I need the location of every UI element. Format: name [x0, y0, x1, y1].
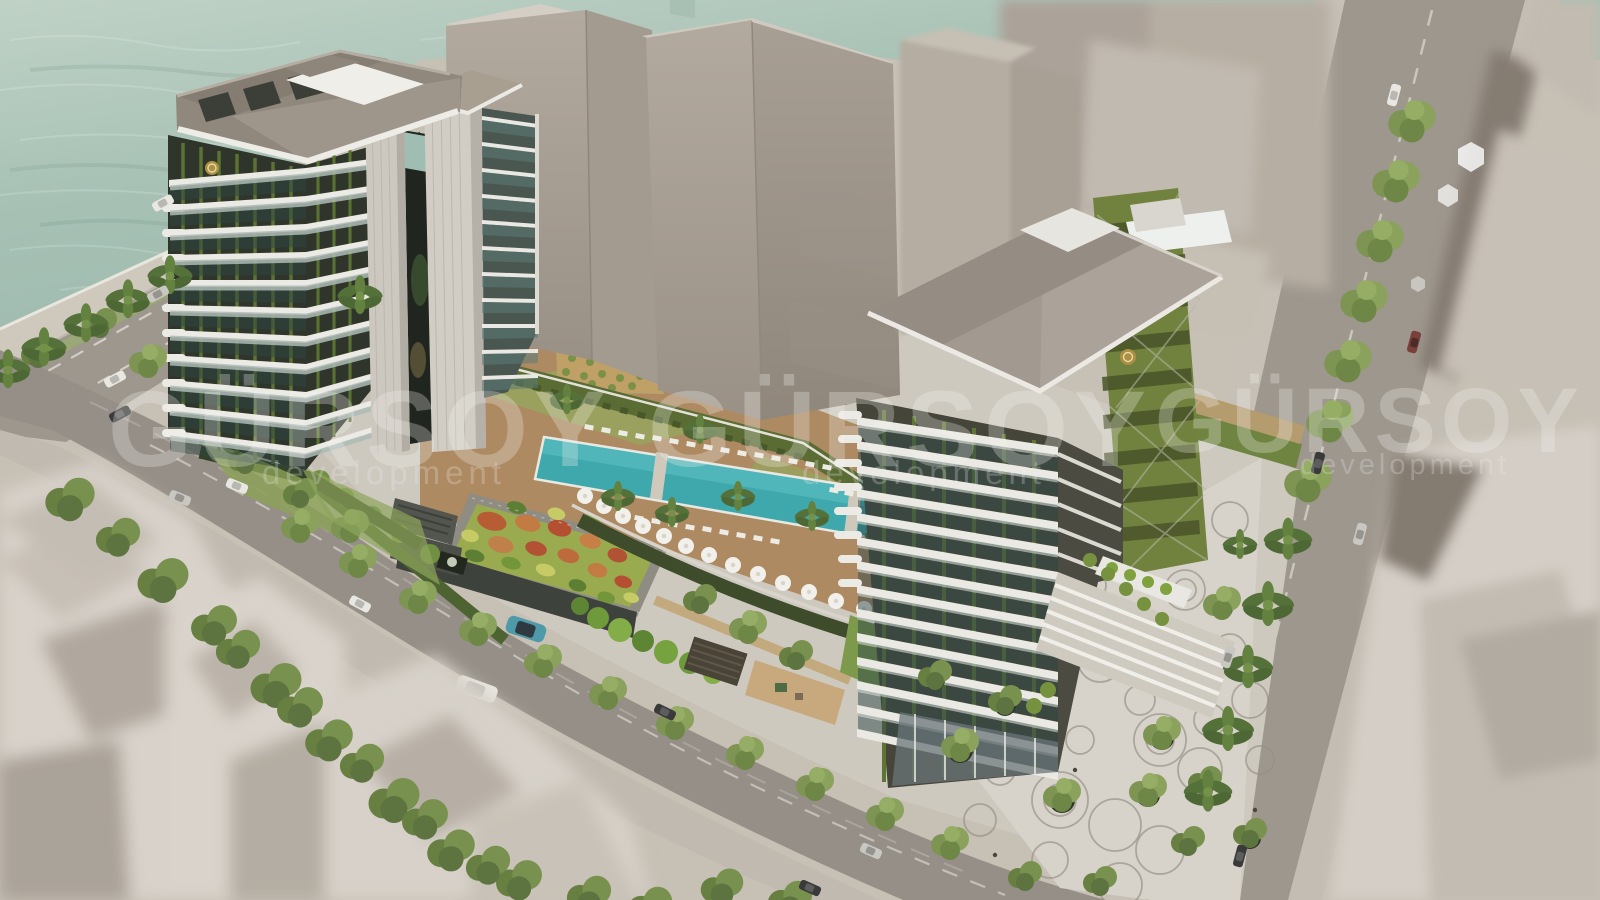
svg-text:development: development [802, 454, 1046, 491]
svg-text:development: development [1300, 449, 1510, 481]
svg-text:development: development [262, 454, 506, 491]
